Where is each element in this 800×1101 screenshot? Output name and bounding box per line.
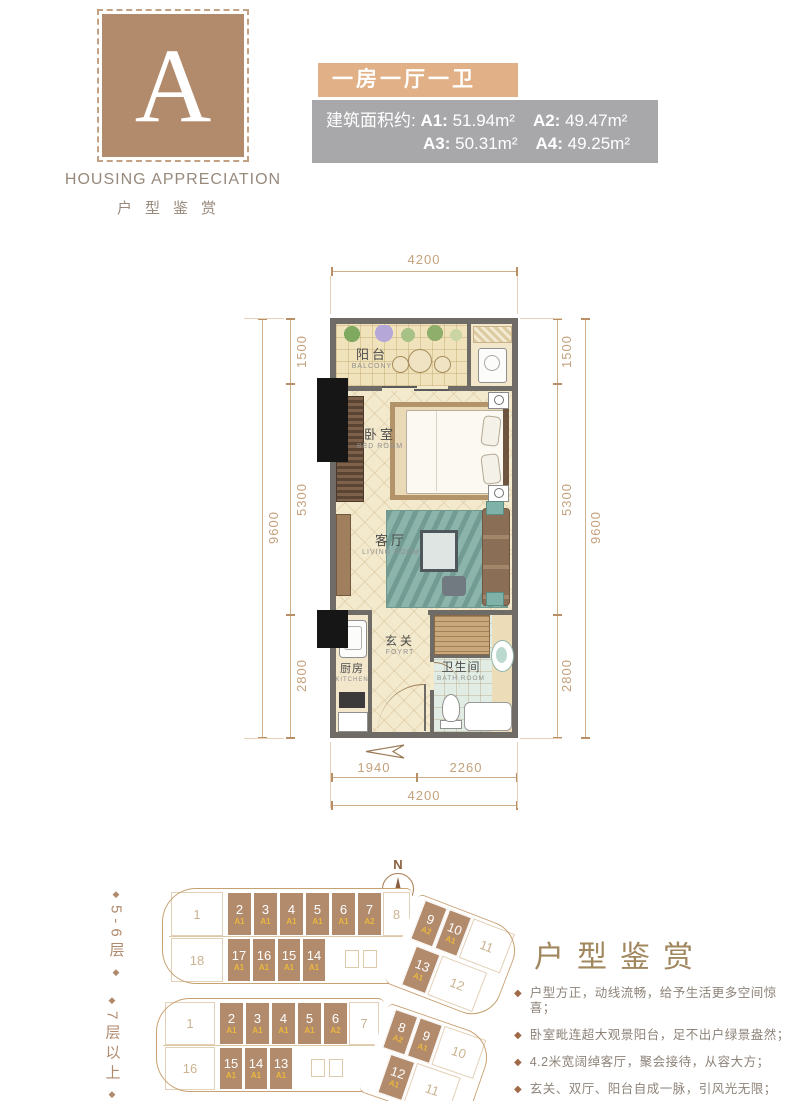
unit-area-A1: A1: 51.94m² — [420, 111, 515, 130]
living-label: 客厅LIVING ROOM — [358, 534, 424, 556]
unit-cell-14: 14A1 — [302, 938, 326, 982]
entry-door-arc — [378, 684, 424, 731]
dim-left-1500: 1500 — [294, 324, 309, 380]
unit-cell-13: 13A1 — [269, 1047, 293, 1090]
extension-line — [244, 738, 284, 739]
unit-cell-14: 14A1 — [244, 1047, 268, 1090]
bullet-text: 玄关、双厅、阳台自成一脉，引风光无限； — [530, 1082, 777, 1097]
unit-area-A4: A4: 49.25m² — [536, 134, 631, 153]
coffee-table — [420, 530, 458, 572]
unit-cell-3: 3A1 — [253, 892, 278, 936]
unit-area-A2: A2: 49.47m² — [533, 111, 628, 130]
logo-subtitle: 户型鉴赏 — [58, 197, 288, 218]
dim-bottom-total: 4200 — [330, 788, 518, 803]
dimension-tick — [553, 614, 562, 616]
area-line-2: A3: 50.31m²A4: 49.25m² — [423, 132, 658, 155]
building-wing-straight: 12A13A14A15A16A17A281817A116A115A114A1 — [162, 888, 412, 984]
unit-cell-5: 5A1 — [305, 892, 330, 936]
dim-right-2800: 2800 — [559, 646, 574, 706]
floor-plan: 阳台BALCONY 卧室BED ROOM — [330, 318, 518, 738]
sliding-door-leaf-2 — [414, 389, 449, 391]
unit-cell-7: 7A2 — [357, 892, 382, 936]
dimension-line — [262, 318, 263, 738]
extension-line — [520, 318, 562, 319]
dim-right-total: 9600 — [588, 496, 603, 560]
unit-cell-15: 15A1 — [277, 938, 301, 982]
dim-top: 4200 — [330, 252, 518, 267]
dim-right-1500: 1500 — [559, 324, 574, 380]
fridge — [338, 712, 368, 732]
balcony-label: 阳台BALCONY — [350, 348, 394, 370]
pouf — [442, 576, 466, 596]
unit-cell-4: 4A1 — [271, 1002, 296, 1045]
unit-cell-1: 1 — [171, 892, 223, 936]
diamond-icon: ◆ — [109, 996, 116, 1005]
dimension-tick — [581, 737, 590, 739]
diamond-icon: ◆ — [514, 1028, 522, 1043]
description-bullet-list: ◆户型方正，动线流畅，给予生活更多空间惊喜；◆卧室毗连超大观景阳台，足不出户绿景… — [514, 986, 790, 1101]
diamond-icon: ◆ — [113, 890, 120, 899]
logo-box: A — [102, 14, 244, 157]
headboard — [503, 408, 509, 494]
unit-cell-15: 15A1 — [219, 1047, 243, 1090]
bedroom-label: 卧室BED ROOM — [354, 428, 406, 450]
extension-line — [330, 742, 331, 808]
entry-arrow-icon — [360, 743, 406, 760]
description-bullet-4: ◆玄关、双厅、阳台自成一脉，引风光无限； — [514, 1082, 790, 1097]
dim-left-5300: 5300 — [294, 468, 309, 532]
balcony-plants — [338, 325, 465, 343]
pillow-top — [480, 415, 502, 447]
unit-cell-16: 16 — [165, 1047, 215, 1090]
side-table-bottom — [486, 592, 504, 606]
dim-bottom-1940: 1940 — [332, 760, 416, 775]
balcony-chair-right — [434, 356, 451, 373]
diamond-icon: ◆ — [514, 986, 522, 1001]
extension-line — [517, 742, 518, 808]
bullet-text: 卧室毗连超大观景阳台，足不出户绿景盎然； — [530, 1028, 790, 1043]
logo-title: HOUSING APPRECIATION — [58, 171, 288, 189]
extension-line — [517, 276, 518, 314]
shower — [434, 615, 490, 655]
dim-right-5300: 5300 — [559, 468, 574, 532]
sliding-door-leaf-1 — [382, 386, 417, 388]
kitchen-label: 厨房 KITCHEN — [332, 662, 372, 683]
dimension-line — [557, 318, 558, 738]
basin-bowl — [496, 647, 507, 663]
stove — [339, 692, 365, 708]
compass-north-label: N — [379, 857, 417, 872]
area-prefix: 建筑面积约: — [326, 111, 420, 130]
extension-line — [244, 318, 284, 319]
bathtub — [464, 702, 512, 731]
foyer-label: 玄关 FOYRT — [376, 634, 424, 656]
description-bullet-1: ◆户型方正，动线流畅，给予生活更多空间惊喜； — [514, 986, 790, 1016]
brochure-page: A HOUSING APPRECIATION 户型鉴赏 一房一厅一卫 建筑面积约… — [0, 0, 800, 1101]
nightstand-lamp-top — [494, 395, 504, 405]
column-lower — [317, 610, 348, 648]
building-wing-straight: 12A13A14A15A16A271615A114A113A1 — [156, 998, 384, 1092]
dimension-line — [332, 777, 516, 778]
bath-label: 卫生间 BATH ROOM — [430, 660, 492, 682]
column-upper — [317, 378, 348, 462]
dim-bottom-2260: 2260 — [416, 760, 516, 775]
dimension-tick — [331, 801, 333, 810]
dimension-tick — [516, 267, 518, 276]
side-table-top — [486, 501, 504, 515]
tv-cabinet — [336, 514, 351, 596]
dimension-tick — [331, 267, 333, 276]
dim-left-total: 9600 — [266, 496, 281, 560]
dimension-tick — [581, 318, 590, 320]
unit-cell-18: 18 — [171, 938, 223, 982]
floor-label-7-up: ◆ 7层以上 ◆ — [100, 996, 124, 1099]
shower-divider — [434, 655, 490, 658]
diamond-icon: ◆ — [109, 1090, 116, 1099]
dimension-tick — [553, 383, 562, 385]
washing-machine-door — [484, 355, 500, 371]
dimension-tick — [416, 773, 418, 782]
elevator-icon — [311, 1059, 325, 1077]
building-mid-line — [163, 1045, 384, 1046]
elevator-icon — [345, 950, 359, 968]
toilet — [442, 694, 460, 722]
description-title: 户型鉴赏 — [534, 932, 706, 976]
diamond-icon: ◆ — [113, 968, 120, 977]
unit-cell-6: 6A2 — [323, 1002, 348, 1045]
unit-cell-2: 2A1 — [219, 1002, 244, 1045]
unit-cell-16: 16A1 — [252, 938, 276, 982]
ac-pad — [473, 326, 512, 343]
dimension-line — [332, 271, 516, 272]
elevator-icon — [329, 1059, 343, 1077]
dimension-line — [585, 318, 586, 738]
unit-cell-1: 1 — [165, 1002, 215, 1045]
extension-line — [330, 276, 331, 314]
pillow-bottom — [480, 453, 502, 485]
unit-cell-2: 2A1 — [227, 892, 252, 936]
elevator-icon — [363, 950, 377, 968]
dimension-line — [332, 805, 516, 806]
unit-area-A3: A3: 50.31m² — [423, 134, 518, 153]
bullet-text: 户型方正，动线流畅，给予生活更多空间惊喜； — [530, 986, 790, 1016]
dimension-tick — [331, 773, 333, 782]
logo-letter: A — [135, 33, 212, 139]
logo: A — [97, 9, 249, 162]
dim-left-2800: 2800 — [294, 646, 309, 706]
entry-door-leaf — [424, 684, 426, 731]
dimension-tick — [286, 318, 295, 320]
area-line-1: 建筑面积约: A1: 51.94m²A2: 49.47m² — [326, 109, 658, 132]
unit-cell-5: 5A1 — [297, 1002, 322, 1045]
dimension-tick — [286, 383, 295, 385]
site-plan-floors-7-up: 12A13A14A15A16A271615A114A113A18A29A1101… — [156, 992, 500, 1101]
area-panel: 建筑面积约: A1: 51.94m²A2: 49.47m² A3: 50.31m… — [312, 100, 658, 163]
dimension-tick — [286, 614, 295, 616]
blanket-fold — [436, 411, 437, 491]
unit-cell-17: 17A1 — [227, 938, 251, 982]
balcony-chair-left — [392, 356, 409, 373]
dimension-line — [290, 318, 291, 738]
diamond-icon: ◆ — [514, 1082, 522, 1097]
building-mid-line — [169, 936, 412, 937]
unit-cell-6: 6A1 — [331, 892, 356, 936]
unit-cell-3: 3A1 — [245, 1002, 270, 1045]
extension-line — [520, 738, 562, 739]
floor-label-5-6: ◆ 5-6层 ◆ — [104, 890, 128, 977]
balcony-table — [408, 349, 432, 373]
dimension-tick — [286, 737, 295, 739]
diamond-icon: ◆ — [514, 1055, 522, 1070]
nightstand-lamp-bottom — [494, 488, 504, 498]
unit-cell-7: 7 — [349, 1002, 379, 1045]
unit-cell-4: 4A1 — [279, 892, 304, 936]
unit-type-title: 一房一厅一卫 — [318, 63, 518, 97]
bullet-text: 4.2米宽阔绰客厅，聚会接待，从容大方； — [530, 1055, 770, 1070]
description-bullet-3: ◆4.2米宽阔绰客厅，聚会接待，从容大方； — [514, 1055, 790, 1070]
description-bullet-2: ◆卧室毗连超大观景阳台，足不出户绿景盎然； — [514, 1028, 790, 1043]
